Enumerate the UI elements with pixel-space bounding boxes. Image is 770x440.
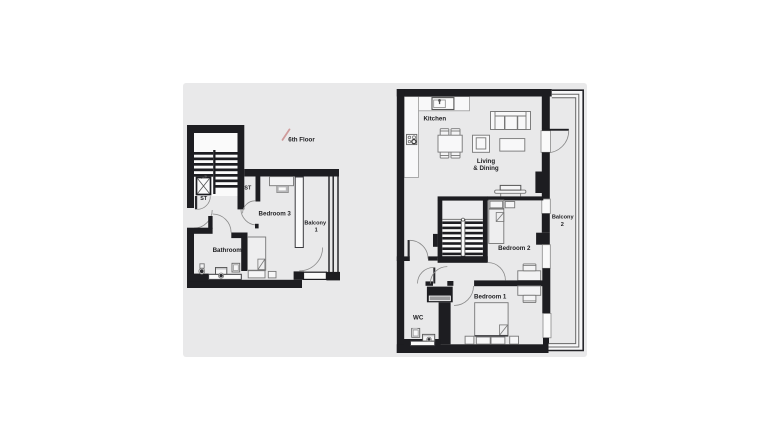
svg-text:Kitchen: Kitchen: [423, 115, 446, 122]
svg-text:6th Floor: 6th Floor: [288, 137, 315, 144]
svg-text:1: 1: [315, 227, 318, 233]
svg-text:Bedroom 1: Bedroom 1: [474, 294, 507, 301]
svg-text:Balcony: Balcony: [304, 220, 327, 226]
svg-text:ST: ST: [244, 185, 252, 191]
svg-text:Bathroom: Bathroom: [213, 247, 243, 254]
svg-text:2: 2: [561, 222, 564, 228]
svg-text:WC: WC: [413, 315, 424, 322]
svg-text:ST: ST: [200, 196, 208, 202]
svg-text:Bedroom 3: Bedroom 3: [259, 211, 292, 218]
svg-text:Balcony: Balcony: [552, 214, 575, 220]
svg-text:& Dining: & Dining: [473, 165, 499, 172]
svg-text:Bedroom 2: Bedroom 2: [498, 245, 531, 252]
